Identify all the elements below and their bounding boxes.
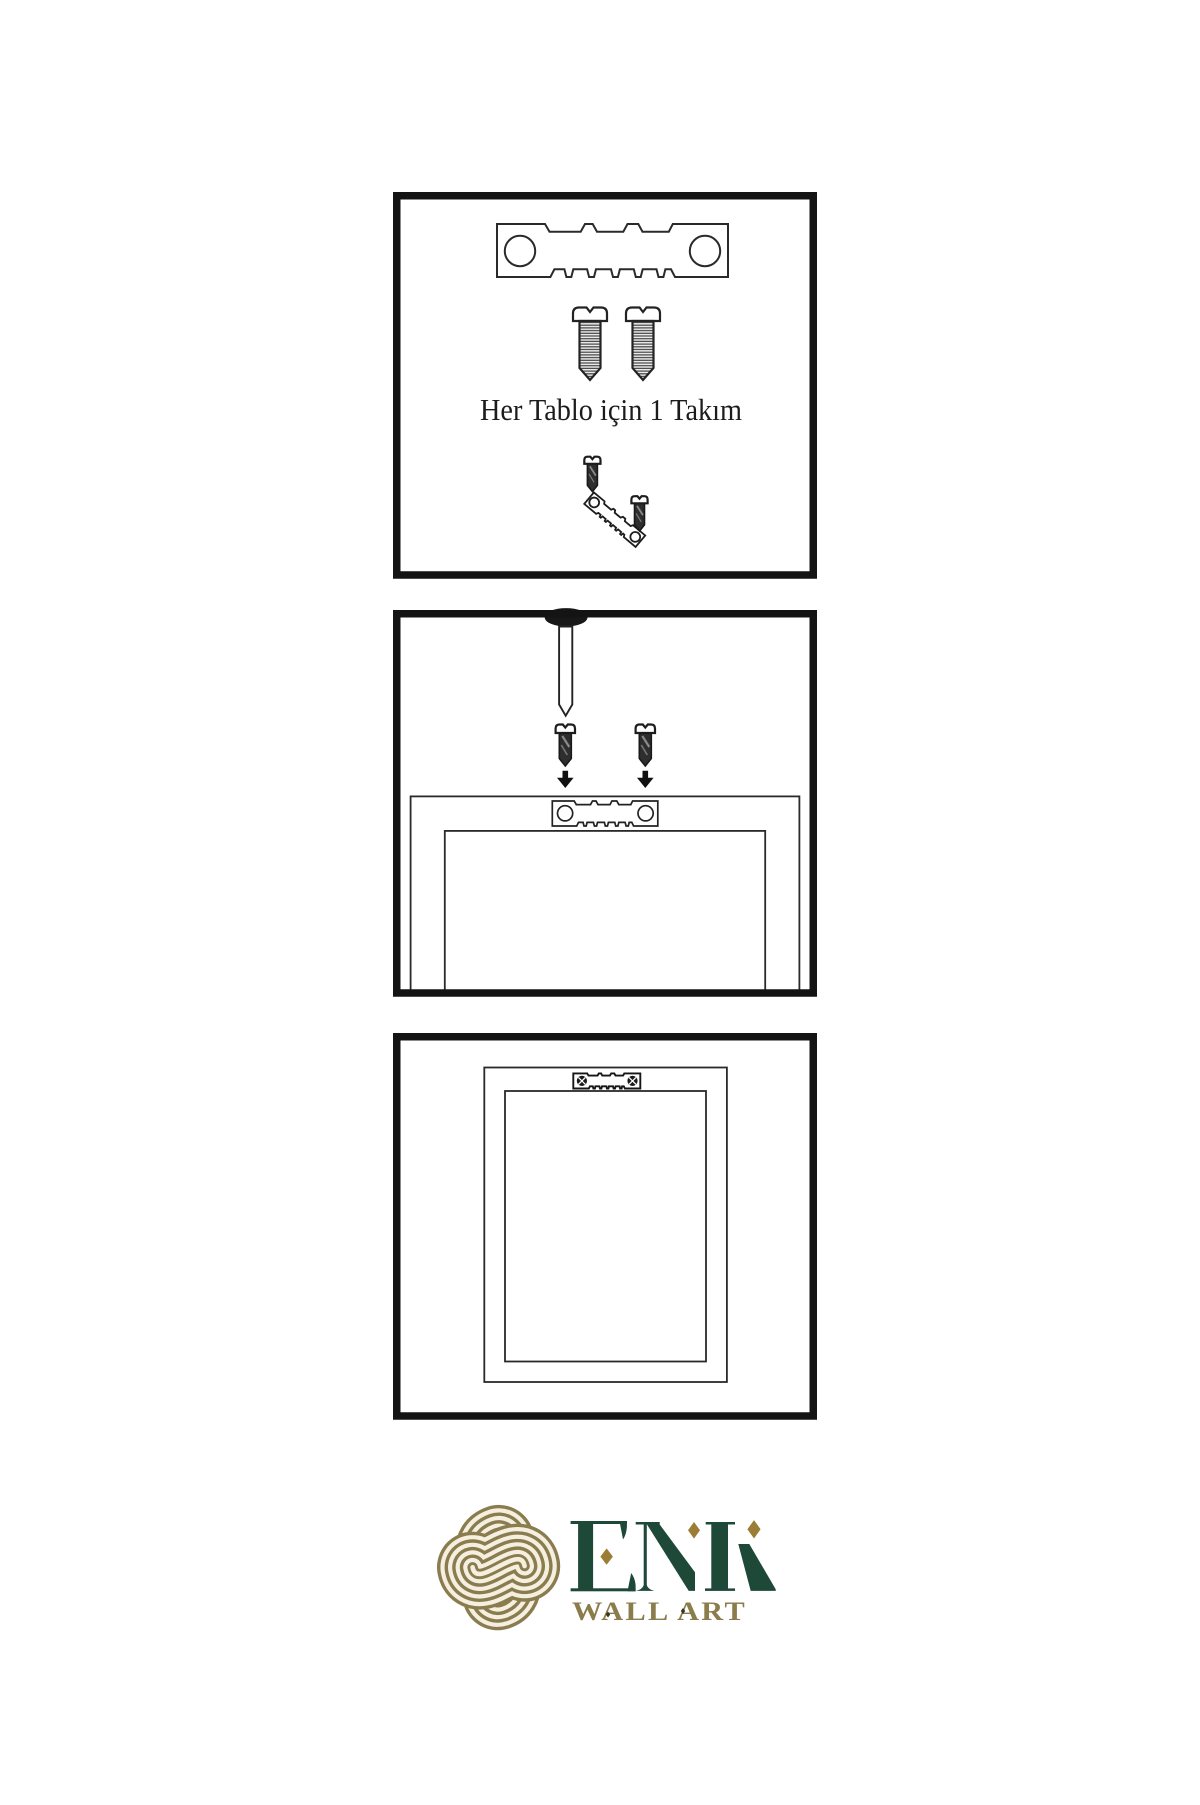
svg-text:WALL ART: WALL ART [572,1597,747,1626]
svg-text:Her Tablo için 1 Takım: Her Tablo için 1 Takım [480,393,742,427]
